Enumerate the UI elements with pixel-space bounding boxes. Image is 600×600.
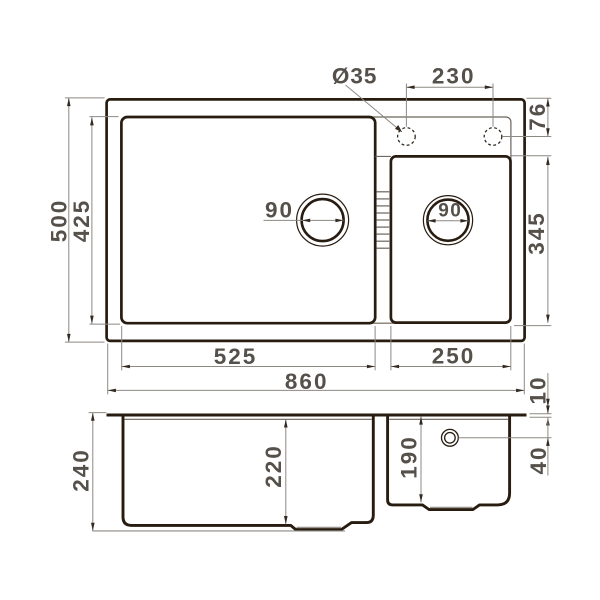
svg-text:240: 240 (68, 448, 93, 492)
svg-text:Ø35: Ø35 (332, 63, 378, 88)
svg-text:40: 40 (526, 445, 551, 474)
svg-text:10: 10 (526, 375, 551, 404)
svg-text:76: 76 (525, 102, 550, 131)
svg-text:250: 250 (432, 344, 476, 369)
svg-text:525: 525 (214, 344, 258, 369)
svg-text:345: 345 (524, 211, 549, 255)
svg-text:90: 90 (438, 200, 462, 221)
svg-text:220: 220 (261, 444, 286, 488)
svg-text:90: 90 (265, 197, 294, 222)
svg-text:230: 230 (432, 63, 476, 88)
svg-text:860: 860 (285, 369, 329, 394)
svg-text:190: 190 (396, 435, 421, 479)
svg-text:425: 425 (69, 199, 94, 243)
svg-text:500: 500 (46, 199, 71, 243)
